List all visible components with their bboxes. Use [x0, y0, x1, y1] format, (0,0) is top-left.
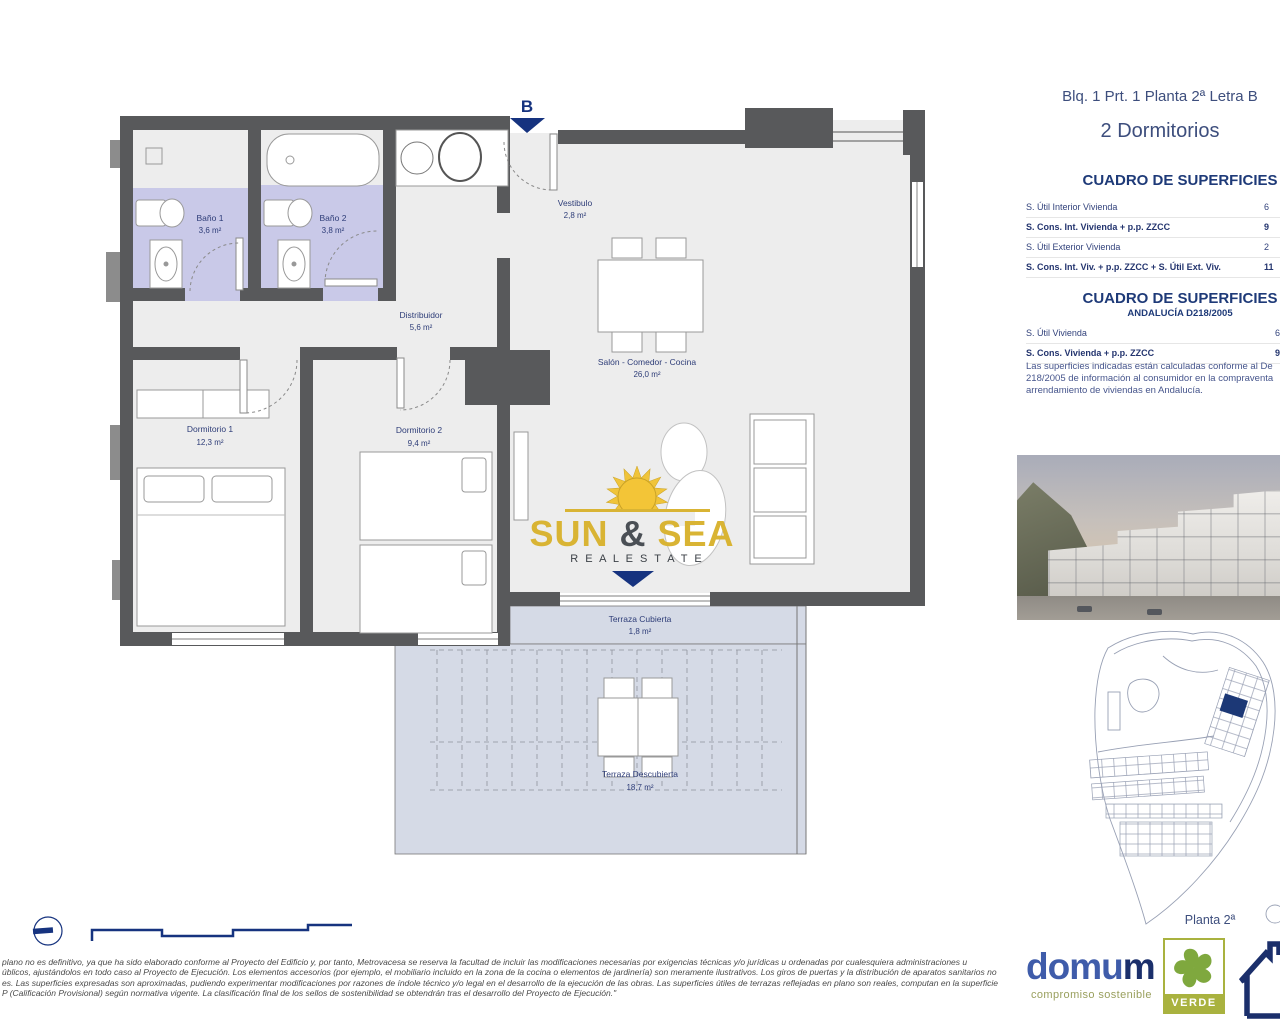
row-value: 6	[1264, 198, 1280, 216]
domum-logo: domum	[1026, 949, 1176, 985]
sink-icon	[278, 240, 310, 288]
room-label: Baño 2	[320, 213, 347, 223]
section-profile-icon	[92, 925, 352, 941]
row-value: 9	[1264, 218, 1280, 236]
room-labels: Baño 1 3,6 m² Baño 2 3,8 m² Vestibulo 2,…	[187, 198, 697, 792]
car	[1147, 609, 1162, 615]
windows	[172, 132, 923, 645]
entrance-arrow-icon	[510, 118, 545, 133]
room-label: Baño 1	[197, 213, 224, 223]
site-units	[1090, 667, 1270, 856]
room-area: 18,7 m²	[626, 783, 653, 792]
row-value: 6	[1275, 324, 1280, 342]
room-label: Terraza Descubierta	[602, 769, 678, 779]
armchair-icon	[661, 423, 707, 481]
logo-word-sun: SUN	[529, 513, 608, 554]
sink-icon	[150, 240, 182, 288]
legal-disclaimer: plano no es definitivo, ya que ha sido e…	[2, 957, 1014, 998]
row-value: 11	[1264, 258, 1280, 276]
surface-table: S. Útil Interior Vivienda 6 S. Cons. Int…	[1026, 198, 1280, 278]
table-row: S. Útil Exterior Vivienda 2	[1026, 238, 1280, 258]
room-label: Salón - Comedor - Cocina	[598, 357, 697, 367]
unit-subtitle: 2 Dormitorios	[1040, 120, 1280, 143]
toilet-icon	[264, 199, 312, 227]
bed-icon	[137, 468, 285, 626]
walls	[106, 108, 925, 646]
siteplan-floor-label: Planta 2ª	[1150, 913, 1270, 927]
terraces	[395, 606, 806, 854]
table-row: S. Útil Vivienda 6	[1026, 324, 1280, 344]
table-row: S. Cons. Int. Vivienda + p.p. ZZCC 9	[1026, 218, 1280, 238]
room-area: 3,8 m²	[322, 226, 345, 235]
dining-table-icon	[598, 238, 703, 352]
verde-leaf-icon	[1165, 941, 1223, 995]
room-label: Dormitorio 2	[396, 425, 443, 435]
domum-tagline: compromiso sostenible	[1031, 989, 1171, 1001]
sofa-icon	[750, 414, 814, 564]
room-area: 12,3 m²	[196, 438, 223, 447]
logo-ampersand: &	[619, 513, 646, 554]
covered-terrace-floor	[510, 606, 806, 644]
logo-word-sea: SEA	[658, 513, 735, 554]
room-area: 26,0 m²	[633, 370, 660, 379]
bathroom2-floor	[261, 185, 383, 288]
sun-icon	[565, 466, 710, 527]
north-circle-icon	[34, 917, 62, 945]
verde-label: VERDE	[1165, 994, 1223, 1012]
table-row: S. Cons. Int. Viv. + p.p. ZZCC + S. Útil…	[1026, 258, 1280, 278]
room-area: 1,8 m²	[629, 627, 652, 636]
bed-icon	[360, 452, 492, 633]
room-label: Distribuidor	[400, 310, 443, 320]
room-label: Vestibulo	[558, 198, 593, 208]
logo-arrow-icon	[612, 571, 654, 587]
surface-table-heading: CUADRO DE SUPERFICIES	[1080, 172, 1280, 189]
house-icon	[1238, 928, 1280, 1020]
doors	[190, 134, 557, 413]
floor-areas	[133, 120, 925, 645]
chaise-icon	[657, 466, 733, 571]
kitchen-counter-icon	[396, 130, 508, 186]
shower-drain-icon	[146, 148, 162, 164]
road	[1017, 596, 1280, 620]
logo-tagline: R E A L E S T A T E	[570, 553, 703, 565]
toilet-icon	[136, 199, 184, 227]
floor-plan: B Baño 1 3,6 m² Baño 2 3,8 m² Vestibulo …	[0, 0, 1010, 1024]
bathroom1-floor	[133, 188, 248, 288]
table-row: S. Útil Interior Vivienda 6	[1026, 198, 1280, 218]
tv-bench-icon	[514, 432, 528, 520]
room-label: Dormitorio 1	[187, 424, 234, 434]
surface-note: Las superficies indicadas están calculad…	[1026, 361, 1280, 397]
sunsea-logo: SUN & SEA R E A L E S T A T E	[529, 466, 734, 587]
bathtub-icon	[267, 134, 379, 186]
surface-table2: S. Útil Vivienda 6 S. Cons. Vivienda + p…	[1026, 324, 1280, 364]
surface-table2-heading: CUADRO DE SUPERFICIES	[1080, 290, 1280, 307]
north-hand-icon	[33, 927, 53, 934]
furniture	[136, 130, 814, 633]
row-value: 2	[1264, 238, 1280, 256]
terrace-table-icon	[598, 678, 678, 777]
svg-text:SUN & SEA: SUN & SEA	[529, 513, 734, 554]
room-area: 3,6 m²	[199, 226, 222, 235]
plan-symbols	[33, 917, 352, 945]
room-label: Terraza Cubierta	[609, 614, 672, 624]
pillar	[465, 350, 550, 405]
row-value: 9	[1275, 344, 1280, 362]
building-photo	[1017, 455, 1280, 620]
entrance-letter: B	[521, 97, 533, 116]
room-area: 9,4 m²	[408, 439, 431, 448]
entrance-marker: B	[510, 97, 545, 133]
wardrobe-icon	[137, 390, 269, 418]
car	[1077, 606, 1092, 612]
site-plan	[1078, 624, 1280, 936]
surface-table2-subheading: ANDALUCÍA D218/2005	[1080, 308, 1280, 319]
unit-title: Blq. 1 Prt. 1 Planta 2ª Letra B	[1040, 88, 1280, 105]
room-area: 2,8 m²	[564, 211, 587, 220]
verde-badge: VERDE	[1163, 938, 1225, 1014]
room-area: 5,6 m²	[410, 323, 433, 332]
open-terrace-floor	[395, 644, 806, 854]
pond	[1128, 679, 1159, 712]
